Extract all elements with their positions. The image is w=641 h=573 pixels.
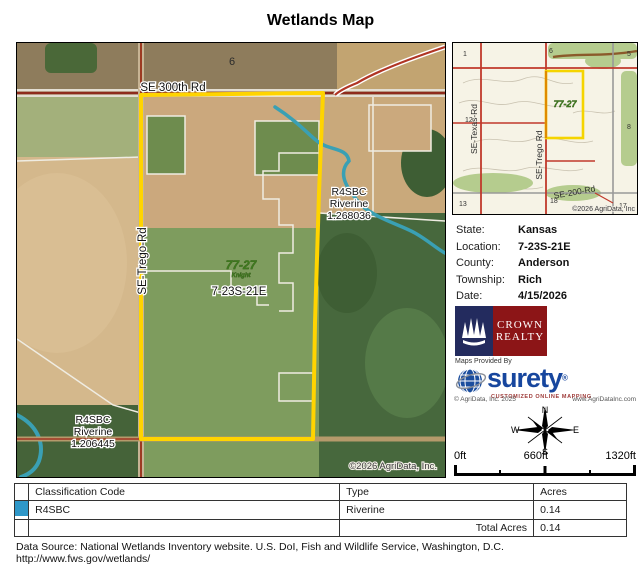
svg-text:1.206445: 1.206445 (71, 438, 115, 450)
location-info: State: Kansas Location: 7-23S-21E County… (456, 222, 636, 305)
agridata-copyright: © AgriData, Inc. 2025 (454, 396, 516, 403)
county-label: County: (456, 255, 518, 272)
info-row-location: Location: 7-23S-21E (456, 239, 636, 256)
surety-registered-mark: ® (562, 374, 568, 383)
total-acres-label: Total Acres (340, 520, 534, 537)
compass-w: W (511, 425, 520, 435)
location-value: 7-23S-21E (518, 239, 571, 256)
total-swatch-cell (15, 520, 29, 537)
info-row-date: Date: 4/15/2026 (456, 288, 636, 305)
wetland-label-bottom-left: R4SBC Riverine 1.206445 (71, 414, 115, 450)
crown-line2: REALTY (496, 331, 544, 343)
watermark-line2: Knight (232, 273, 252, 279)
surety-logo: surety® CUSTOMIZED ONLINE MAPPING (455, 366, 635, 400)
surety-globe-icon (455, 366, 487, 396)
crown-wordmark: CROWN REALTY (493, 306, 547, 356)
page-title: Wetlands Map (0, 12, 641, 30)
classification-swatch (15, 501, 29, 520)
swatch-header-cell (15, 484, 29, 501)
location-label: Location: (456, 239, 518, 256)
compass-n: N (542, 405, 549, 415)
svg-text:R4SBC: R4SBC (331, 186, 366, 198)
scale-0: 0ft (454, 450, 466, 462)
header-acres: Acres (534, 484, 627, 501)
header-type: Type (340, 484, 534, 501)
svg-text:SE-Trego Rd: SE-Trego Rd (534, 130, 544, 180)
state-label: State: (456, 222, 518, 239)
svg-text:Riverine: Riverine (74, 426, 113, 438)
compass-icon: N S E W (510, 404, 580, 456)
svg-text:13: 13 (459, 201, 467, 208)
county-value: Anderson (518, 255, 569, 272)
wetland-label-right: R4SBC Riverine 1.268036 (327, 186, 371, 222)
main-map-canvas: 6 SE 300th Rd SE-Trego-Rd 77-27 Knight 7… (17, 43, 445, 477)
info-row-state: State: Kansas (456, 222, 636, 239)
wetlands-classification-table: Classification Code Type Acres R4SBC Riv… (14, 483, 627, 537)
road-left-label: SE-Trego-Rd (137, 227, 149, 294)
svg-text:R4SBC: R4SBC (75, 414, 110, 426)
date-value: 4/15/2026 (518, 288, 567, 305)
sidebar: 77-27 1 6 5 12 8 13 18 17 SE-Texas-Rd SE… (452, 42, 638, 478)
table-row: R4SBC Riverine 0.14 (15, 501, 627, 520)
total-empty-cell (29, 520, 340, 537)
watermark-line1: 77-27 (226, 258, 258, 272)
total-acres-value: 0.14 (534, 520, 627, 537)
crown-line1: CROWN (497, 319, 543, 331)
section-number-label: 6 (229, 56, 235, 68)
township-label: Township: (456, 272, 518, 289)
svg-text:5: 5 (627, 51, 631, 58)
inset-map-canvas: 77-27 1 6 5 12 8 13 18 17 SE-Texas-Rd SE… (453, 43, 637, 214)
svg-text:1.268036: 1.268036 (327, 210, 371, 222)
scale-bar: 0ft 660ft 1320ft (454, 450, 636, 481)
info-row-county: County: Anderson (456, 255, 636, 272)
table-header-row: Classification Code Type Acres (15, 484, 627, 501)
cell-acres: 0.14 (534, 501, 627, 520)
info-row-township: Township: Rich (456, 272, 636, 289)
crown-realty-logo: CROWN REALTY (455, 306, 547, 356)
township-label: 7-23S-21E (212, 286, 267, 298)
table-total-row: Total Acres 0.14 (15, 520, 627, 537)
road-top-label: SE 300th Rd (140, 82, 205, 94)
compass-rose: N S E W (510, 404, 580, 456)
agridata-credit-row: © AgriData, Inc. 2025 www.AgriDataInc.co… (454, 396, 636, 403)
header-classification-code: Classification Code (29, 484, 340, 501)
data-source-footer: Data Source: National Wetlands Inventory… (16, 541, 636, 565)
inset-copyright: ©2026 AgriData, Inc (572, 205, 635, 213)
inset-watermark: 77-27 (553, 99, 577, 109)
scale-mid: 660ft (524, 450, 548, 462)
main-aerial-map: 6 SE 300th Rd SE-Trego-Rd 77-27 Knight 7… (16, 42, 446, 478)
svg-text:SE-Texas-Rd: SE-Texas-Rd (469, 104, 479, 154)
date-label: Date: (456, 288, 518, 305)
agridata-url: www.AgriDataInc.com (572, 396, 636, 403)
main-map-copyright: ©2026 AgriData, Inc. (349, 461, 437, 472)
inset-locator-map: 77-27 1 6 5 12 8 13 18 17 SE-Texas-Rd SE… (452, 42, 638, 215)
svg-text:8: 8 (627, 124, 631, 131)
svg-text:Riverine: Riverine (330, 198, 369, 210)
state-value: Kansas (518, 222, 557, 239)
cell-type: Riverine (340, 501, 534, 520)
cell-code: R4SBC (29, 501, 340, 520)
svg-text:6: 6 (549, 48, 553, 55)
crown-icon (455, 306, 493, 356)
surety-wordmark: surety (487, 363, 562, 393)
wetlands-map-report: Wetlands Map (0, 0, 641, 573)
svg-text:1: 1 (463, 51, 467, 58)
scale-max: 1320ft (605, 450, 636, 462)
compass-e: E (573, 425, 579, 435)
township-value: Rich (518, 272, 542, 289)
scale-ruler (454, 464, 636, 476)
